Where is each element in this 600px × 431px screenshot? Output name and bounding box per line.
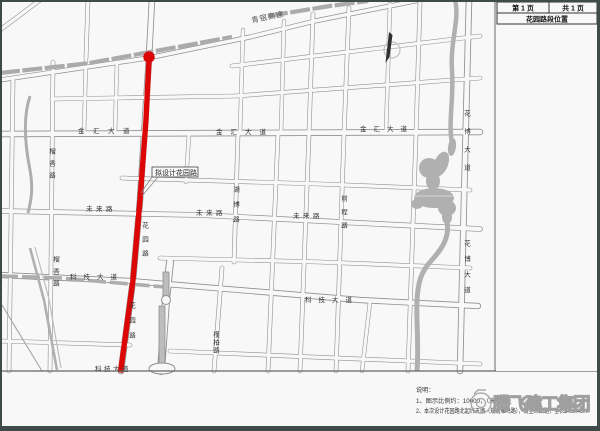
svg-text:未来路: 未来路 [196, 208, 226, 217]
svg-text:金汇大道: 金汇大道 [216, 127, 274, 136]
svg-text:拟设计花园路: 拟设计花园路 [155, 168, 197, 177]
svg-text:未来路: 未来路 [86, 204, 116, 213]
svg-text:第 1 页: 第 1 页 [512, 4, 534, 13]
svg-text:科技大道: 科技大道 [70, 272, 124, 281]
svg-text:金汇大道: 金汇大道 [360, 124, 414, 133]
svg-text:腾飞建工集团: 腾飞建工集团 [493, 394, 590, 414]
svg-text:说明：: 说明： [416, 386, 435, 394]
svg-text:科技大道: 科技大道 [305, 295, 359, 304]
svg-text:花园路段位置: 花园路段位置 [526, 15, 568, 24]
svg-text:科技大道: 科技大道 [95, 364, 131, 373]
svg-text:金汇大道: 金汇大道 [78, 126, 138, 135]
svg-text:共 1 页: 共 1 页 [562, 4, 584, 13]
svg-text:未来路: 未来路 [293, 211, 323, 220]
